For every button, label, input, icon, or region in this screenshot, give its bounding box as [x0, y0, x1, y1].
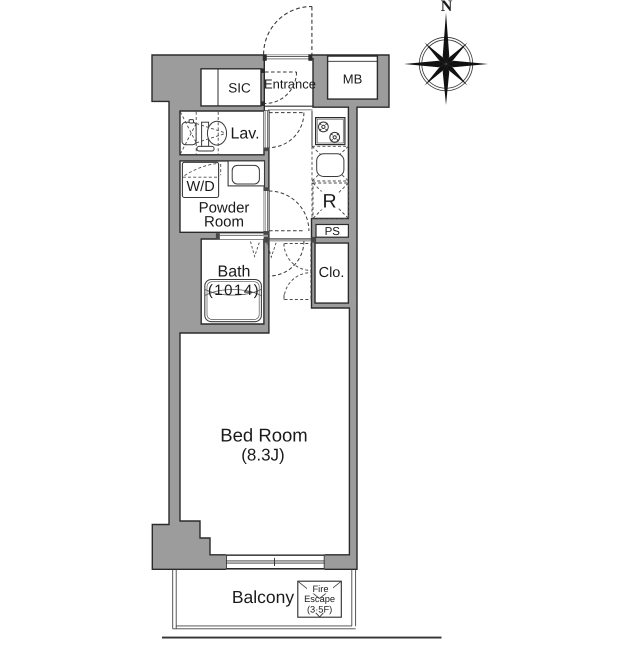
svg-text:(3·5F): (3·5F) — [307, 604, 332, 614]
svg-text:Entrance: Entrance — [264, 77, 316, 92]
svg-text:Clo.: Clo. — [319, 265, 345, 281]
svg-text:MB: MB — [343, 72, 363, 87]
svg-text:Escape: Escape — [304, 594, 335, 604]
svg-text:R: R — [322, 191, 336, 213]
svg-text:W/D: W/D — [187, 179, 215, 195]
svg-text:Bed Room: Bed Room — [220, 424, 307, 445]
svg-text:(1014): (1014) — [208, 282, 260, 299]
svg-text:Balcony: Balcony — [232, 587, 295, 607]
svg-text:Room: Room — [204, 214, 244, 231]
svg-text:Fire: Fire — [312, 584, 328, 594]
svg-text:(8.3J): (8.3J) — [241, 446, 284, 465]
svg-text:Bath: Bath — [218, 263, 251, 280]
svg-text:Lav.: Lav. — [230, 125, 259, 142]
svg-text:PS: PS — [325, 226, 341, 238]
svg-text:SIC: SIC — [228, 80, 251, 95]
svg-text:N: N — [441, 0, 453, 15]
